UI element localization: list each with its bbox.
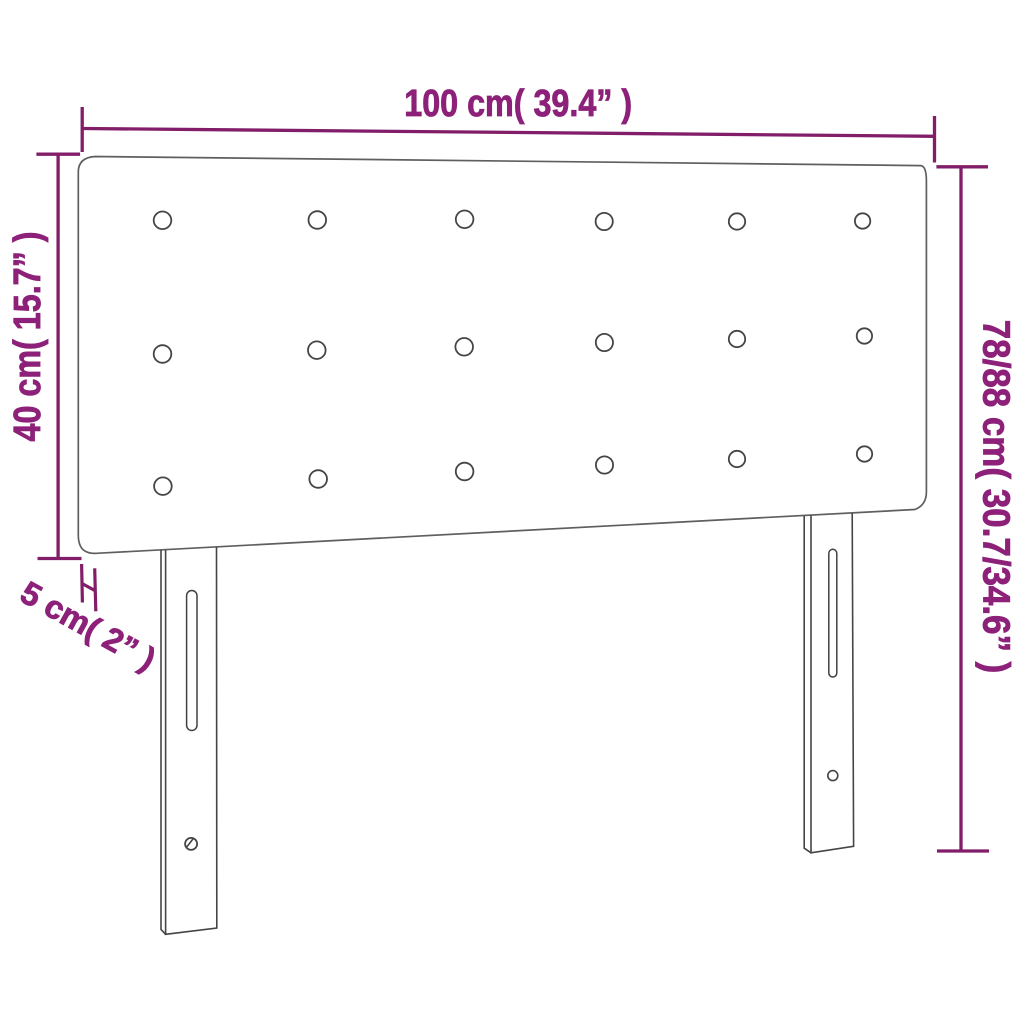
svg-text:78/88 cm( 30.7/34.6” ): 78/88 cm( 30.7/34.6” ): [975, 320, 1018, 674]
svg-text:40 cm( 15.7” ): 40 cm( 15.7” ): [7, 232, 49, 442]
svg-text:100 cm( 39.4” ): 100 cm( 39.4” ): [404, 82, 632, 124]
